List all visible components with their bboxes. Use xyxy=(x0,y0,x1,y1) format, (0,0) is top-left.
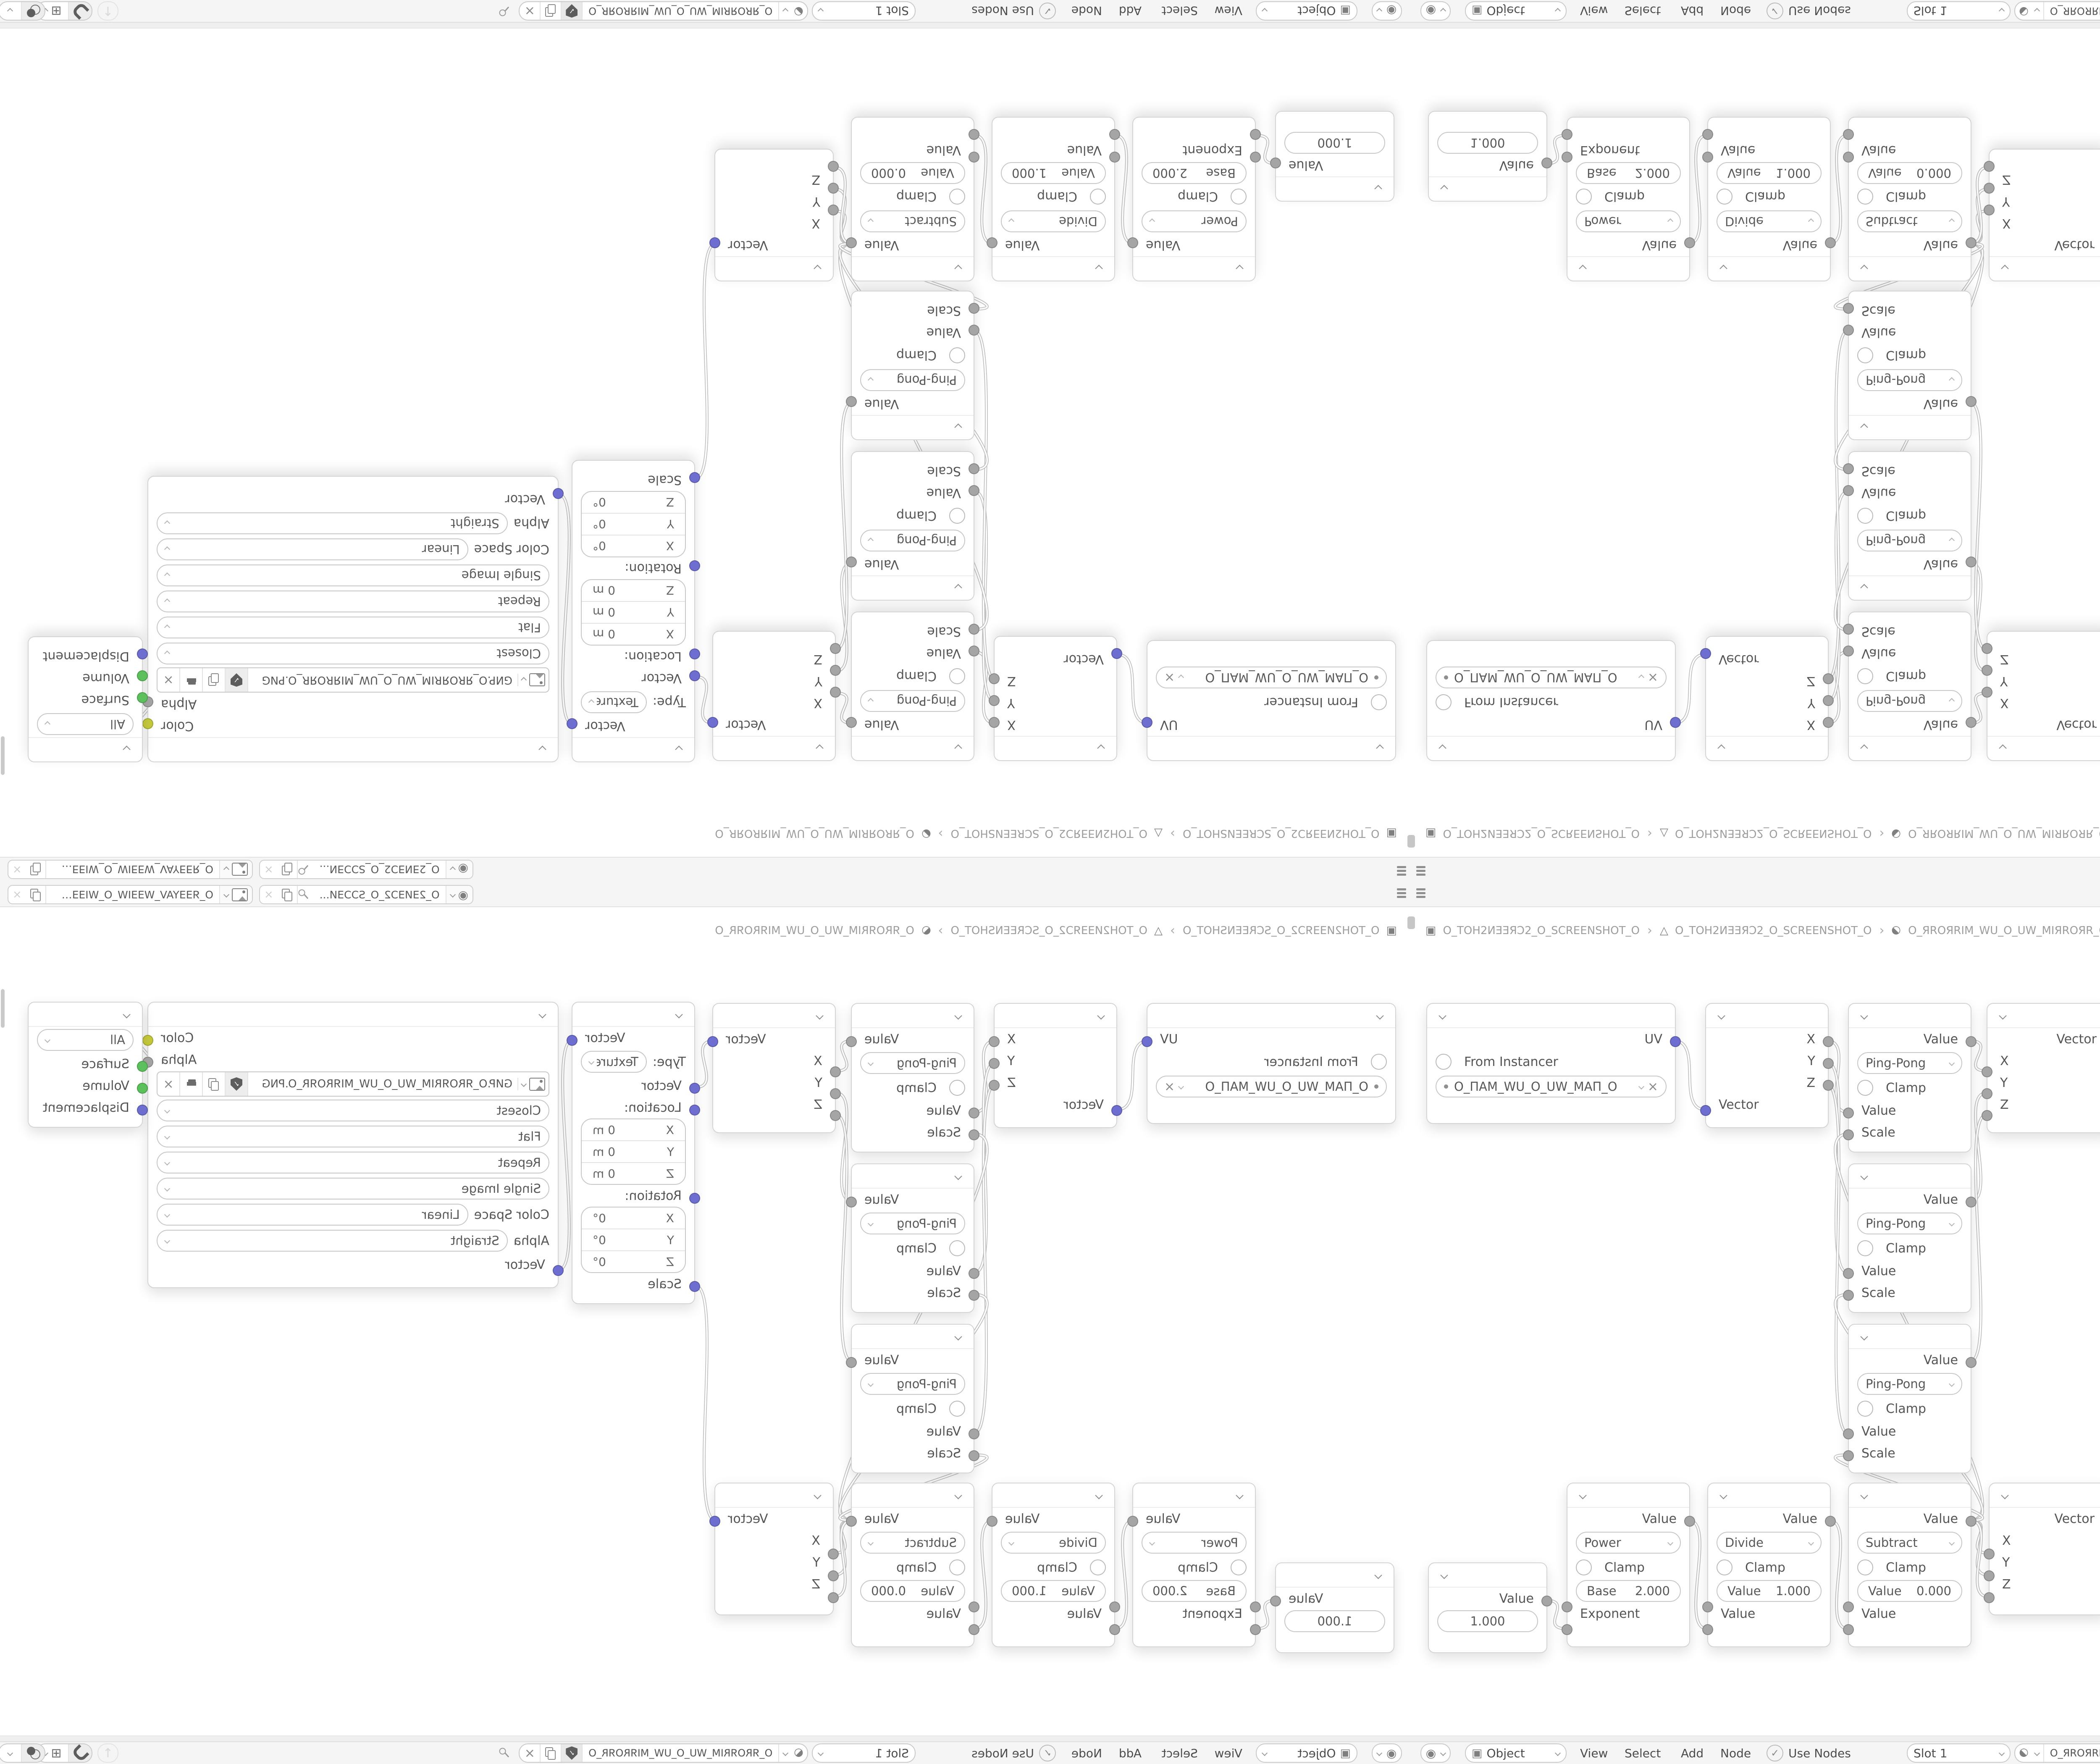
dropdown[interactable]: Single Image xyxy=(157,564,549,586)
dropdown[interactable]: Power xyxy=(1142,1532,1247,1554)
value-socket-value[interactable] xyxy=(1966,237,1977,248)
node-collapse-chevron-icon[interactable] xyxy=(1706,736,1828,760)
value-socket-value[interactable] xyxy=(969,485,979,496)
material-output-node[interactable]: AllSurfaceVolumeDisplacement xyxy=(28,636,143,762)
hamburger-menu-icon[interactable] xyxy=(1416,864,1425,877)
menu-add[interactable]: Add xyxy=(1681,2,1704,20)
value-socket-value[interactable] xyxy=(846,237,857,248)
checkbox[interactable] xyxy=(1371,694,1387,710)
vector-socket-uv[interactable] xyxy=(1142,717,1152,728)
image-browse-button[interactable] xyxy=(518,668,549,692)
dropdown[interactable]: Divide xyxy=(1001,210,1106,232)
value-socket-value[interactable] xyxy=(1109,1624,1120,1635)
math-pingpong-node-1[interactable]: ValuePing-PongClampValueScale xyxy=(851,1003,974,1152)
node-collapse-chevron-icon[interactable] xyxy=(1147,736,1395,760)
checkbox[interactable] xyxy=(1090,1559,1106,1575)
vector-socket-uv[interactable] xyxy=(1142,1036,1152,1047)
value-socket-value[interactable] xyxy=(846,717,857,728)
viewlayer-icon[interactable] xyxy=(219,861,252,878)
dropdown[interactable]: Ping-Pong xyxy=(1857,1373,1962,1395)
vector-socket-rotation[interactable] xyxy=(689,1193,700,1204)
value-socket-x[interactable] xyxy=(989,717,1000,728)
vector-socket-vector[interactable] xyxy=(709,237,720,248)
value-socket-z[interactable] xyxy=(1984,161,1995,172)
image-filename[interactable]: GИP.O_ЯROЯRIM_WU_O_UW_MIЯROЯR_O.PNG xyxy=(248,674,518,686)
value-socket-value[interactable] xyxy=(1127,1516,1138,1527)
value-socket-value[interactable] xyxy=(1966,717,1977,728)
value-node[interactable]: Value1.000 xyxy=(1428,111,1547,202)
value-socket-scale[interactable] xyxy=(1843,624,1854,635)
image-browse-button[interactable] xyxy=(518,1072,549,1096)
menu-view[interactable]: View xyxy=(1215,1744,1242,1762)
scene-icon[interactable]: ◉ xyxy=(446,886,472,903)
math-subtract-node[interactable]: ValueSubtractClampValue0.000Value xyxy=(851,117,974,281)
math-divide-node[interactable]: ValueDivideClampValue1.000Value xyxy=(992,117,1115,281)
combine-xyz-node-2[interactable]: VectorXYZ xyxy=(1989,149,2100,281)
unlink-material-button[interactable]: × xyxy=(520,1744,541,1762)
value-socket-scale[interactable] xyxy=(969,303,979,314)
value-socket-value[interactable] xyxy=(1966,396,1977,407)
material-browse-button[interactable]: ◑ xyxy=(779,1744,807,1762)
breadcrumb-object[interactable]: O_TOH2ИƎƎЯƆ2_O_SCREENSHOT_O xyxy=(1183,827,1379,840)
dropdown[interactable]: Linear xyxy=(157,538,468,560)
menu-select[interactable]: Select xyxy=(1625,2,1661,20)
value-socket-scale[interactable] xyxy=(969,1450,979,1461)
vector-socket-vector[interactable] xyxy=(567,1035,577,1046)
vector-socket-vector[interactable] xyxy=(553,1265,564,1276)
shader-type-dropdown[interactable]: ▣Object xyxy=(1465,1,1567,21)
vector-socket-vector[interactable] xyxy=(709,1516,720,1527)
value-socket-value[interactable] xyxy=(846,1197,857,1207)
material-name[interactable]: O_ЯROЯRIM_WU_O_UW_MIЯROЯR_O xyxy=(583,2,779,20)
use-nodes-checkbox[interactable]: ✓ Use Nodes xyxy=(971,1744,1056,1762)
editor-type-button[interactable]: ◉ xyxy=(1372,1,1402,21)
math-power-node[interactable]: ValuePowerClampBase2.000Exponent xyxy=(1132,1483,1256,1647)
value-socket-z[interactable] xyxy=(828,1592,839,1603)
vector-socket-vector[interactable] xyxy=(1111,648,1122,659)
value-socket-z[interactable] xyxy=(1823,673,1834,684)
checkbox[interactable] xyxy=(1717,1559,1732,1575)
editor-type-button[interactable]: ◉ xyxy=(1420,1743,1451,1763)
value-socket-scale[interactable] xyxy=(1843,1450,1854,1461)
vector-field[interactable]: X0 m xyxy=(582,624,685,645)
dropdown[interactable]: Ping-Pong xyxy=(1857,1213,1962,1234)
close-scene-icon[interactable]: × xyxy=(260,888,278,901)
value-socket-y[interactable] xyxy=(1823,1058,1834,1069)
checkbox[interactable] xyxy=(1576,189,1592,205)
overlays-control[interactable] xyxy=(0,1,45,21)
math-divide-node[interactable]: ValueDivideClampValue1.000Value xyxy=(1707,1483,1831,1647)
vector-socket-vector[interactable] xyxy=(689,1083,700,1094)
image-texture-node[interactable]: ColorAlphaGИP.O_ЯROЯRIM_WU_O_UW_MIЯROЯR_… xyxy=(147,476,559,762)
dropdown[interactable]: Ping-Pong xyxy=(1857,1052,1962,1074)
vector-socket-vector[interactable] xyxy=(1111,1105,1122,1116)
vector-socket-vector[interactable] xyxy=(553,488,564,499)
use-nodes-checkbox[interactable]: ✓ Use Nodes xyxy=(971,2,1056,20)
dropdown[interactable]: All xyxy=(37,713,134,735)
value-socket-z[interactable] xyxy=(828,161,839,172)
pack-image-button[interactable] xyxy=(180,1072,203,1096)
new-image-button[interactable] xyxy=(203,1072,226,1096)
value-socket-scale[interactable] xyxy=(969,1290,979,1301)
combine-xyz-node-1[interactable]: VectorXYZ xyxy=(1987,631,2100,761)
node-collapse-chevron-icon[interactable] xyxy=(1427,1004,1675,1028)
menu-add[interactable]: Add xyxy=(1681,1744,1704,1762)
node-collapse-chevron-icon[interactable] xyxy=(715,256,833,281)
value-socket-value[interactable] xyxy=(969,1624,979,1635)
node-collapse-chevron-icon[interactable] xyxy=(1849,415,1971,439)
value-socket-value[interactable] xyxy=(969,1108,979,1118)
mapping-node[interactable]: VectorType:TextureVectorLocation:X0 mY0 … xyxy=(572,460,695,762)
value-socket-x[interactable] xyxy=(989,1036,1000,1047)
node-collapse-chevron-icon[interactable] xyxy=(713,1004,835,1028)
image-filename[interactable]: GИP.O_ЯROЯRIM_WU_O_UW_MIЯROЯR_O.PNG xyxy=(248,1078,518,1090)
menu-select[interactable]: Select xyxy=(1162,1744,1198,1762)
value-socket-value[interactable] xyxy=(1127,237,1138,248)
breadcrumb-material[interactable]: O_ЯROЯRIM_WU_O_UW_MIЯROЯR_O xyxy=(715,827,914,840)
breadcrumb-mesh[interactable]: O_TOH2ИƎƎЯƆ2_O_SCREENSHOT_O xyxy=(951,924,1147,937)
dropdown[interactable]: Divide xyxy=(1717,1532,1822,1554)
node-collapse-chevron-icon[interactable] xyxy=(1276,1563,1394,1588)
hamburger-menu-icon[interactable] xyxy=(1397,887,1406,900)
value-socket-value[interactable] xyxy=(1702,1624,1713,1635)
menu-add[interactable]: Add xyxy=(1119,2,1142,20)
material-browse-button[interactable]: ◑ xyxy=(779,2,807,20)
math-power-node[interactable]: ValuePowerClampBase2.000Exponent xyxy=(1132,117,1256,281)
vector-field[interactable]: Z0 m xyxy=(582,1162,685,1184)
node-collapse-chevron-icon[interactable] xyxy=(572,737,694,761)
checkbox[interactable] xyxy=(949,1559,965,1575)
fake-user-button[interactable]: ✓ xyxy=(562,2,583,20)
pin-icon[interactable] xyxy=(496,1744,514,1762)
close-viewlayer-icon[interactable]: × xyxy=(8,863,26,876)
node-collapse-chevron-icon[interactable] xyxy=(572,1003,694,1027)
checkbox[interactable] xyxy=(949,1080,965,1096)
value-socket-x[interactable] xyxy=(1823,717,1834,728)
vector-socket-rotation[interactable] xyxy=(689,560,700,571)
combine-xyz-node-2[interactable]: VectorXYZ xyxy=(714,1483,834,1615)
new-viewlayer-button[interactable] xyxy=(26,886,46,903)
dropdown[interactable]: All xyxy=(37,1029,134,1051)
math-subtract-node[interactable]: ValueSubtractClampValue0.000Value xyxy=(1848,1483,1971,1647)
vector-socket-uv[interactable] xyxy=(1670,717,1681,728)
dropdown[interactable]: Ping-Pong xyxy=(860,690,965,712)
right-scrollbar[interactable] xyxy=(1,989,5,1028)
checkbox[interactable] xyxy=(1576,1559,1592,1575)
left-scroll-nub[interactable] xyxy=(1411,835,1415,848)
unlink-image-button[interactable]: × xyxy=(157,1072,180,1096)
material-name[interactable]: O_ЯROЯRIM_WU_O_UW_MIЯROЯR_O xyxy=(2043,1744,2100,1762)
checkbox[interactable] xyxy=(1857,1401,1873,1417)
math-subtract-node[interactable]: ValueSubtractClampValue0.000Value xyxy=(851,1483,974,1647)
uv-map-node[interactable]: UVFrom InstancerO_ПAM_WU_O_UW_MAП_O× xyxy=(1147,1003,1396,1124)
value-socket-value[interactable] xyxy=(1541,1596,1552,1606)
material-browse-button[interactable]: ◑ xyxy=(2015,1744,2043,1762)
node-collapse-chevron-icon[interactable] xyxy=(1990,256,2100,281)
dropdown[interactable]: Closest xyxy=(157,1100,549,1121)
value-field[interactable]: Value0.000 xyxy=(860,1580,965,1602)
dropdown[interactable]: Single Image xyxy=(157,1178,549,1200)
vector-field[interactable]: X0 m xyxy=(582,1119,685,1140)
pin-icon[interactable] xyxy=(496,2,514,20)
dropdown[interactable]: Straight xyxy=(157,1230,508,1252)
dropdown[interactable]: Ping-Pong xyxy=(860,369,965,391)
value-socket-value[interactable] xyxy=(987,1516,997,1527)
value-socket-exponent[interactable] xyxy=(1250,129,1261,140)
value-socket-value[interactable] xyxy=(1843,1108,1854,1118)
value-socket-value[interactable] xyxy=(1843,325,1854,336)
checkbox[interactable] xyxy=(1857,1080,1873,1096)
value-socket-value[interactable] xyxy=(1825,237,1836,248)
vector-socket-vector[interactable] xyxy=(689,670,700,681)
dropdown[interactable]: Flat xyxy=(157,1126,549,1147)
pack-image-button[interactable] xyxy=(180,668,203,692)
node-collapse-chevron-icon[interactable] xyxy=(148,1003,558,1027)
math-pingpong-node-3[interactable]: ValuePing-PongClampValueScale xyxy=(851,291,974,440)
shader-socket-volume[interactable] xyxy=(137,670,148,681)
value-socket-exponent[interactable] xyxy=(1250,1624,1261,1635)
value-field[interactable]: Base2.000 xyxy=(1142,162,1247,184)
dropdown[interactable]: Power xyxy=(1576,210,1681,232)
breadcrumb-mesh[interactable]: O_TOH2ИƎƎЯƆ2_O_SCREENSHOT_O xyxy=(1675,827,1872,840)
value-socket-value[interactable] xyxy=(1702,129,1713,140)
dropdown[interactable]: Ping-Pong xyxy=(860,530,965,551)
value-node[interactable]: Value1.000 xyxy=(1275,111,1394,202)
unlink-material-button[interactable]: × xyxy=(520,2,541,20)
checkbox[interactable] xyxy=(1436,694,1452,710)
menu-view[interactable]: View xyxy=(1215,2,1242,20)
value-socket-value[interactable] xyxy=(1966,1197,1977,1207)
value-socket-scale[interactable] xyxy=(969,463,979,474)
shader-socket-surface[interactable] xyxy=(137,1061,148,1072)
value-socket-scale[interactable] xyxy=(1843,1290,1854,1301)
value-socket-z[interactable] xyxy=(989,673,1000,684)
node-collapse-chevron-icon[interactable] xyxy=(713,736,835,760)
overlays-dropdown[interactable] xyxy=(0,2,22,20)
checkbox[interactable] xyxy=(1857,1240,1873,1256)
value-socket-value[interactable] xyxy=(1966,1036,1977,1047)
viewlayer-name[interactable]: O_ЯƎƎYAV_WƎƎIW_O_WIƎƎW_VAYƎƎЯR_O xyxy=(46,889,219,901)
vector-field[interactable]: Z0° xyxy=(582,1250,685,1272)
math-subtract-node[interactable]: ValueSubtractClampValue0.000Value xyxy=(1848,117,1971,281)
breadcrumb-mesh[interactable]: O_TOH2ИƎƎЯƆ2_O_SCREENSHOT_O xyxy=(951,827,1147,840)
value-socket-value[interactable] xyxy=(1966,1516,1977,1527)
node-collapse-chevron-icon[interactable] xyxy=(1849,1483,1971,1508)
dropdown[interactable]: Flat xyxy=(157,617,549,638)
value-socket-value[interactable] xyxy=(969,325,979,336)
value-node[interactable]: Value1.000 xyxy=(1275,1562,1394,1653)
checkbox[interactable] xyxy=(1090,189,1106,205)
checkbox[interactable] xyxy=(1857,508,1873,524)
math-pingpong-node-1[interactable]: ValuePing-PongClampValueScale xyxy=(1848,1003,1971,1152)
vector-socket-scale[interactable] xyxy=(689,1281,700,1292)
dropdown[interactable]: O_ПAM_WU_O_UW_MAП_O× xyxy=(1156,1076,1387,1097)
slot-dropdown[interactable]: Slot 1 xyxy=(1907,1,2011,21)
breadcrumb-object[interactable]: O_TOH2ИƎƎЯƆ2_O_SCREENSHOT_O xyxy=(1183,924,1379,937)
editor-type-button[interactable]: ◉ xyxy=(1372,1743,1402,1763)
clear-icon[interactable]: × xyxy=(1648,670,1658,685)
fake-user-button[interactable]: ✓ xyxy=(226,1072,248,1096)
dropdown[interactable]: Ping-Pong xyxy=(860,1213,965,1234)
separate-xyz-node[interactable]: XYZVector xyxy=(994,1003,1117,1128)
node-collapse-chevron-icon[interactable] xyxy=(1987,736,2100,760)
dropdown[interactable]: Divide xyxy=(1717,210,1822,232)
dropdown[interactable]: Power xyxy=(1576,1532,1681,1554)
node-collapse-chevron-icon[interactable] xyxy=(1567,1483,1689,1508)
math-pingpong-node-2[interactable]: ValuePing-PongClampValueScale xyxy=(1848,1163,1971,1313)
use-nodes-checkbox[interactable]: ✓ Use Nodes xyxy=(1767,2,1851,20)
dropdown[interactable]: Subtract xyxy=(1857,210,1962,232)
node-collapse-chevron-icon[interactable] xyxy=(852,256,974,281)
checkbox[interactable] xyxy=(949,1240,965,1256)
math-divide-node[interactable]: ValueDivideClampValue1.000Value xyxy=(992,1483,1115,1647)
menu-node[interactable]: Node xyxy=(1720,1744,1751,1762)
slot-dropdown[interactable]: Slot 1 xyxy=(812,1,916,21)
value-socket-scale[interactable] xyxy=(1843,303,1854,314)
left-scroll-nub[interactable] xyxy=(1407,835,1411,848)
value-socket-value[interactable] xyxy=(1843,129,1854,140)
dropdown[interactable]: Ping-Pong xyxy=(860,1052,965,1074)
dropdown[interactable]: Subtract xyxy=(860,1532,965,1554)
value-field[interactable]: Value1.000 xyxy=(1717,1580,1822,1602)
overlays-toggle-button[interactable] xyxy=(22,1744,45,1762)
left-scroll-nub[interactable] xyxy=(1411,916,1415,929)
dropdown[interactable]: O_ПAM_WU_O_UW_MAП_O× xyxy=(1156,667,1387,688)
material-selector[interactable]: ◑ O_ЯROЯRIM_WU_O_UW_MIЯROЯR_O ✓ × xyxy=(519,1,808,21)
value-socket-x[interactable] xyxy=(1823,1036,1834,1047)
math-power-node[interactable]: ValuePowerClampBase2.000Exponent xyxy=(1567,1483,1690,1647)
menu-view[interactable]: View xyxy=(1580,2,1608,20)
value-field[interactable]: Value0.000 xyxy=(860,162,965,184)
scene-selector[interactable]: ◉ O_2ƎИƎƆ2_O_SƆƆƎИ... × xyxy=(259,885,473,904)
value-socket-value[interactable] xyxy=(1966,556,1977,567)
value-socket-y[interactable] xyxy=(1823,695,1834,706)
value-socket-z[interactable] xyxy=(989,1080,1000,1091)
dropdown[interactable]: Ping-Pong xyxy=(1857,530,1962,551)
value-socket-scale[interactable] xyxy=(969,1129,979,1140)
value-field[interactable]: Value0.000 xyxy=(1857,1580,1962,1602)
menu-select[interactable]: Select xyxy=(1625,1744,1661,1762)
node-collapse-chevron-icon[interactable] xyxy=(148,737,558,761)
node-collapse-chevron-icon[interactable] xyxy=(1427,736,1675,760)
value-field[interactable]: Base2.000 xyxy=(1142,1580,1247,1602)
color-socket-color[interactable] xyxy=(142,718,153,729)
dropdown[interactable]: Texture xyxy=(581,1051,647,1073)
node-collapse-chevron-icon[interactable] xyxy=(1990,1483,2100,1508)
scene-name[interactable]: O_2ƎИƎƆ2_O_SƆƆƎИ... xyxy=(310,889,446,901)
fake-user-button[interactable]: ✓ xyxy=(562,1744,583,1762)
dropdown[interactable]: Ping-Pong xyxy=(1857,369,1962,391)
snap-toggle-button[interactable] xyxy=(69,2,92,20)
value-field[interactable]: Value1.000 xyxy=(1001,1580,1106,1602)
checkbox[interactable] xyxy=(949,668,965,684)
proportional-edit-button[interactable]: ↑ xyxy=(97,1743,118,1763)
menu-node[interactable]: Node xyxy=(1071,1744,1102,1762)
value-field[interactable]: Value1.000 xyxy=(1001,162,1106,184)
menu-select[interactable]: Select xyxy=(1162,2,1198,20)
breadcrumb-material[interactable]: O_ЯROЯRIM_WU_O_UW_MIЯROЯR_O xyxy=(1908,924,2100,937)
vector-socket-vector[interactable] xyxy=(567,718,577,729)
node-collapse-chevron-icon[interactable] xyxy=(29,1003,142,1027)
overlays-toggle-button[interactable] xyxy=(22,2,45,20)
close-scene-icon[interactable]: × xyxy=(260,863,278,876)
breadcrumb-object[interactable]: O_TOH2ИƎƎЯƆ2_O_SCREENSHOT_O xyxy=(1443,827,1640,840)
vector-socket-scale[interactable] xyxy=(689,472,700,483)
viewlayer-selector[interactable]: O_ЯƎƎYAV_WƎƎIW_O_WIƎƎW_VAYƎƎЯR_O × xyxy=(8,885,253,904)
value-field[interactable]: 1.000 xyxy=(1284,1610,1385,1632)
left-scroll-nub[interactable] xyxy=(1407,916,1411,929)
value-socket-scale[interactable] xyxy=(1843,1129,1854,1140)
node-collapse-chevron-icon[interactable] xyxy=(1133,1483,1255,1508)
dropdown[interactable]: Ping-Pong xyxy=(1857,690,1962,712)
node-collapse-chevron-icon[interactable] xyxy=(852,1483,974,1508)
value-socket-value[interactable] xyxy=(1109,129,1120,140)
vector-socket-displacement[interactable] xyxy=(137,1105,148,1116)
value-socket-y[interactable] xyxy=(989,1058,1000,1069)
value-field[interactable]: Base2.000 xyxy=(1576,1580,1681,1602)
new-viewlayer-button[interactable] xyxy=(26,861,46,878)
checkbox[interactable] xyxy=(1231,189,1247,205)
value-socket-z[interactable] xyxy=(1984,1592,1995,1603)
vector-socket-location[interactable] xyxy=(689,648,700,659)
uv-map-node[interactable]: UVFrom InstancerO_ПAM_WU_O_UW_MAП_O× xyxy=(1426,640,1676,761)
material-browse-button[interactable]: ◑ xyxy=(2015,2,2043,20)
menu-node[interactable]: Node xyxy=(1071,2,1102,20)
menu-add[interactable]: Add xyxy=(1119,1744,1142,1762)
node-collapse-chevron-icon[interactable] xyxy=(1849,1004,1971,1028)
viewlayer-icon[interactable] xyxy=(219,886,252,903)
dropdown[interactable]: Power xyxy=(1142,210,1247,232)
vector-field[interactable]: Y0 m xyxy=(582,602,685,624)
material-output-node[interactable]: AllSurfaceVolumeDisplacement xyxy=(28,1002,143,1128)
node-collapse-chevron-icon[interactable] xyxy=(1276,176,1394,201)
dropdown[interactable]: O_ПAM_WU_O_UW_MAП_O× xyxy=(1436,1076,1667,1097)
scene-name[interactable]: O_2ƎИƎƆ2_O_SƆƆƎИ... xyxy=(310,864,446,876)
image-texture-node[interactable]: ColorAlphaGИP.O_ЯROЯRIM_WU_O_UW_MIЯROЯR_… xyxy=(147,1002,559,1288)
unlink-image-button[interactable]: × xyxy=(157,668,180,692)
value-socket-value[interactable] xyxy=(846,1036,857,1047)
use-nodes-checkbox[interactable]: ✓ Use Nodes xyxy=(1767,1744,1851,1762)
dropdown[interactable]: Subtract xyxy=(860,210,965,232)
clear-icon[interactable]: × xyxy=(1648,1079,1658,1094)
color-socket-color[interactable] xyxy=(142,1035,153,1046)
breadcrumb-material[interactable]: O_ЯROЯRIM_WU_O_UW_MIЯROЯR_O xyxy=(1908,827,2100,840)
value-socket-scale[interactable] xyxy=(969,624,979,635)
overlays-dropdown[interactable] xyxy=(0,1744,22,1762)
math-pingpong-node-1[interactable]: ValuePing-PongClampValueScale xyxy=(1848,612,1971,761)
value-socket-value[interactable] xyxy=(1843,1428,1854,1439)
slot-dropdown[interactable]: Slot 1 xyxy=(1907,1743,2011,1763)
material-selector[interactable]: ◑ O_ЯROЯRIM_WU_O_UW_MIЯROЯR_O ✓ × xyxy=(2014,1,2100,21)
dropdown[interactable]: Ping-Pong xyxy=(860,1373,965,1395)
vector-field[interactable]: Y0 m xyxy=(582,1140,685,1162)
checkbox[interactable] xyxy=(1717,189,1732,205)
value-socket-value[interactable] xyxy=(1684,1516,1695,1527)
material-name[interactable]: O_ЯROЯRIM_WU_O_UW_MIЯROЯR_O xyxy=(2043,2,2100,20)
node-collapse-chevron-icon[interactable] xyxy=(852,1325,974,1349)
combine-xyz-node-1[interactable]: VectorXYZ xyxy=(712,631,836,761)
uv-map-node[interactable]: UVFrom InstancerO_ПAM_WU_O_UW_MAП_O× xyxy=(1426,1003,1676,1124)
editor-type-button[interactable]: ◉ xyxy=(1420,1,1451,21)
node-collapse-chevron-icon[interactable] xyxy=(1706,1004,1828,1028)
value-socket-value[interactable] xyxy=(1843,1268,1854,1279)
vector-field[interactable]: X0° xyxy=(582,535,685,556)
node-collapse-chevron-icon[interactable] xyxy=(852,1164,974,1189)
new-image-button[interactable] xyxy=(203,668,226,692)
vector-socket-vector[interactable] xyxy=(1700,1105,1711,1116)
node-collapse-chevron-icon[interactable] xyxy=(1429,176,1546,201)
shader-type-dropdown[interactable]: ▣Object xyxy=(1256,1,1357,21)
